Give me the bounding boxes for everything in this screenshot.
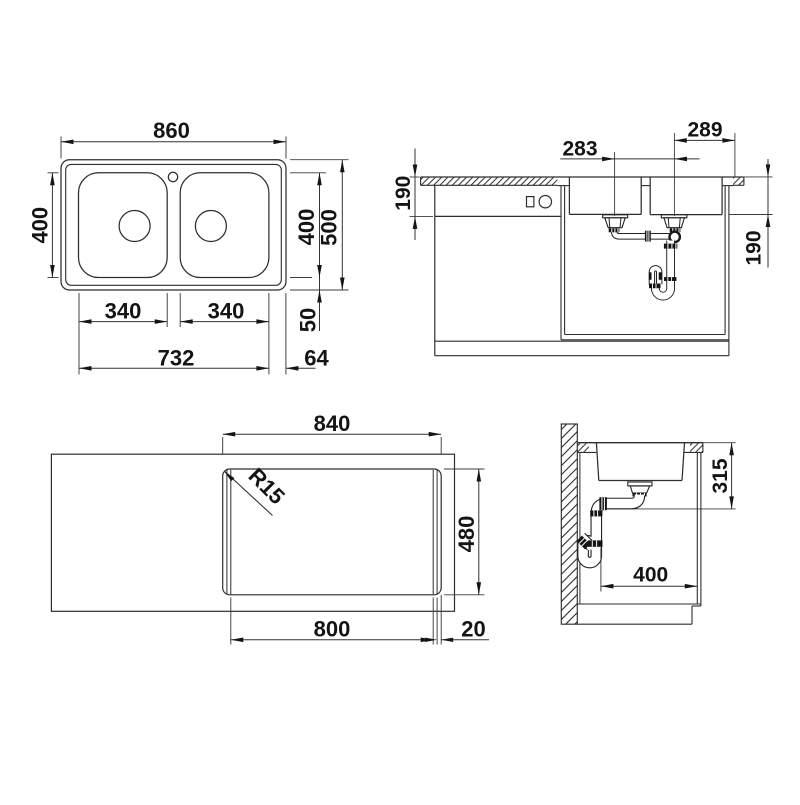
svg-text:283: 283 [562,137,597,160]
svg-text:860: 860 [153,118,190,143]
svg-text:480: 480 [454,516,479,553]
svg-text:400: 400 [294,209,319,246]
svg-text:840: 840 [314,411,351,436]
svg-text:289: 289 [687,119,722,142]
svg-text:190: 190 [743,230,766,265]
svg-text:190: 190 [392,176,415,211]
svg-text:500: 500 [317,209,342,246]
svg-text:315: 315 [709,458,732,493]
svg-text:400: 400 [27,207,52,244]
svg-text:64: 64 [304,345,329,370]
svg-text:340: 340 [208,299,245,324]
svg-text:732: 732 [158,345,195,370]
svg-text:800: 800 [314,617,351,642]
svg-text:50: 50 [295,308,320,332]
svg-text:340: 340 [105,299,142,324]
svg-text:20: 20 [461,617,485,642]
svg-text:400: 400 [633,564,668,587]
